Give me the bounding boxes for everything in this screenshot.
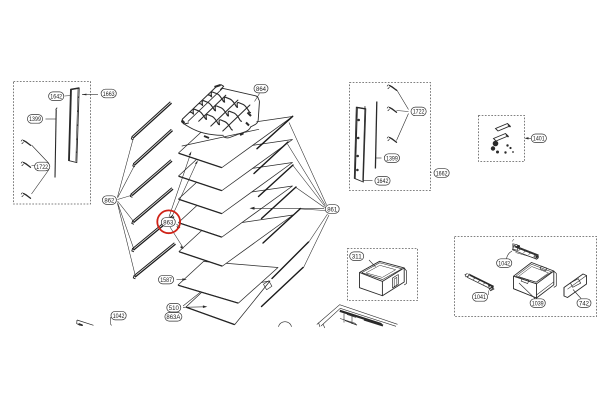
svg-text:1399: 1399	[386, 155, 398, 162]
svg-text:863: 863	[163, 219, 173, 226]
svg-text:861: 861	[327, 206, 337, 213]
svg-text:1042: 1042	[498, 260, 510, 267]
svg-text:1642: 1642	[50, 93, 62, 100]
svg-text:1399: 1399	[29, 116, 41, 123]
svg-text:510: 510	[169, 305, 179, 312]
svg-text:864: 864	[256, 86, 266, 93]
svg-text:1722: 1722	[36, 164, 48, 171]
svg-text:862: 862	[104, 197, 114, 204]
svg-text:1039: 1039	[532, 300, 544, 307]
svg-text:1722: 1722	[413, 109, 425, 116]
svg-text:311: 311	[352, 253, 362, 260]
svg-text:1587: 1587	[160, 277, 172, 284]
svg-text:742: 742	[579, 300, 589, 307]
svg-text:863A: 863A	[166, 314, 181, 321]
svg-text:1642: 1642	[377, 178, 389, 185]
svg-text:1401: 1401	[533, 136, 545, 143]
svg-text:1041: 1041	[474, 294, 486, 301]
svg-text:1042: 1042	[113, 313, 125, 320]
svg-text:1663: 1663	[103, 91, 115, 98]
svg-text:1662: 1662	[436, 170, 448, 177]
